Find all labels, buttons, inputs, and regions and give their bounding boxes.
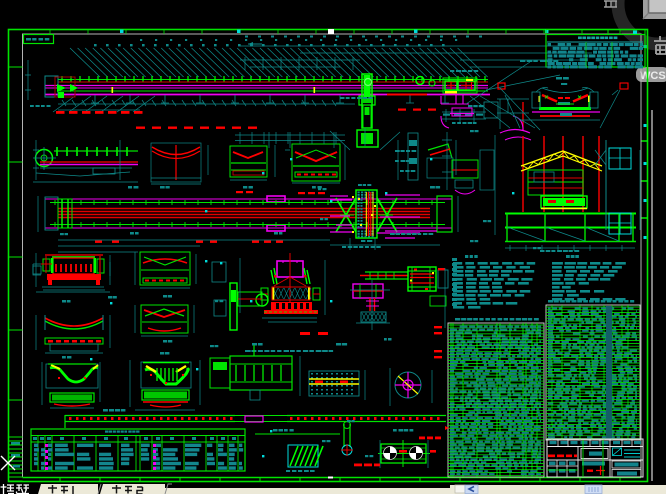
svg-text:WCS: WCS <box>640 70 666 82</box>
